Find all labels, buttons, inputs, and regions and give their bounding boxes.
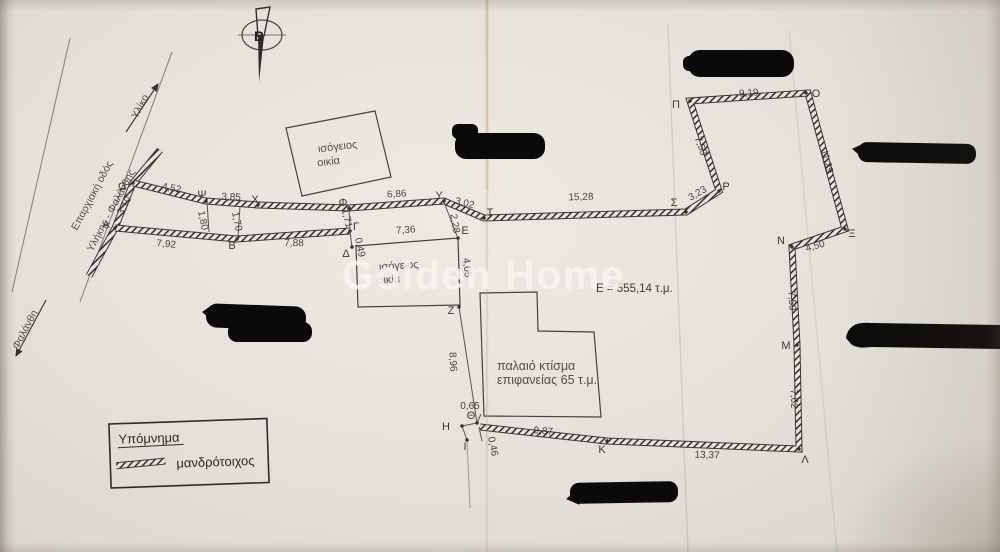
point-omega: Ω <box>118 181 126 193</box>
point-psi: Ψ <box>197 189 206 201</box>
point-iota: Ι <box>463 441 466 453</box>
old-building-label-line2: επιφανείας 65 τ.μ. <box>497 373 597 387</box>
wall-lower-hatch <box>115 228 350 239</box>
line-gamma-delta <box>350 231 352 247</box>
measure-tau-epsilon: 2,28 <box>447 213 461 235</box>
legend-title: Υπόμνημα <box>118 430 180 447</box>
point-omicron: Ο <box>812 88 821 100</box>
point-zeta: Ζ <box>448 305 455 317</box>
measure-lambda-kappa: 13,37 <box>694 450 720 462</box>
measure-chi-tick: 1,70 <box>229 211 244 233</box>
redaction-bottom <box>566 481 678 505</box>
measure-nu-mu: 7,59 <box>785 291 797 312</box>
point-lambda: Λ <box>801 454 809 466</box>
measure-tau-sigma: 15,28 <box>568 192 594 204</box>
measure-delta-epsilon: 7,36 <box>396 224 417 236</box>
point-chi: Χ <box>251 194 259 206</box>
point-alpha: Α <box>102 219 110 231</box>
point-kappa: Κ <box>598 444 606 456</box>
line-theta-eta <box>462 423 477 426</box>
redaction-top-right <box>683 50 794 77</box>
measure-beta-gamma: 7,88 <box>284 238 304 249</box>
measure-alpha-beta: 7,92 <box>156 238 177 251</box>
compass-rose: Β <box>238 7 286 82</box>
survey-plan-svg: Επαρχιακή οδός Υλήκης - Φαλάνθης Υλίκο Φ… <box>0 0 1000 552</box>
redaction-right-lower <box>846 323 1000 349</box>
redaction-top-center <box>452 124 545 159</box>
point-eta: Η <box>442 421 450 433</box>
measure-phi-upsilon: 6,86 <box>387 188 408 200</box>
measure-zeta-theta: 8,96 <box>446 352 458 373</box>
redaction-left <box>202 303 312 342</box>
measure-omicron-xi: 11,29 <box>818 148 835 175</box>
redaction-right-upper <box>852 142 976 164</box>
measure-theta-eta: 0,65 <box>460 401 480 412</box>
point-pi: Π <box>672 99 680 111</box>
building-old-outline <box>480 292 601 417</box>
golden-home-watermark: Golden Home <box>342 252 625 298</box>
provincial-road: Επαρχιακή οδός Υλήκης - Φαλάνθης Υλίκο Φ… <box>10 38 172 356</box>
legend-box: Υπόμνημα μανδρότοιχος <box>109 419 269 488</box>
measure-psi-chi: 3,85 <box>221 192 241 204</box>
point-xi: Ξ <box>848 228 855 240</box>
scanned-survey-plan: Επαρχιακή οδός Υλήκης - Φαλάνθης Υλίκο Φ… <box>0 0 1000 552</box>
old-building-label-line1: παλαιό κτίσμα <box>497 359 575 373</box>
point-epsilon: Ε <box>461 225 468 237</box>
legend-wall-label: μανδρότοιχος <box>176 453 255 471</box>
point-mu: Μ <box>781 340 790 352</box>
point-rho: Ρ <box>722 181 729 193</box>
house1-label-line1: ισόγειος <box>317 139 358 156</box>
building-house1-outline <box>286 111 391 196</box>
point-upsilon: Υ <box>435 190 443 202</box>
compass-north-letter: Β <box>254 28 264 44</box>
point-nu: Ν <box>777 235 785 247</box>
house1-label-line2: οικία <box>317 155 342 170</box>
measure-kappa-theta: 9,87 <box>533 425 554 438</box>
line-eta-iota <box>462 426 467 440</box>
road-destination-south-label: Φαλάνθη <box>10 308 41 351</box>
point-phi: Φ <box>339 197 348 209</box>
line-below-iota <box>467 440 470 508</box>
point-beta: Β <box>228 240 235 252</box>
measure-mu-lambda: 7,62 <box>788 389 800 409</box>
road-line-left <box>12 38 70 292</box>
measure-pi-omicron: 9,19 <box>739 87 760 99</box>
